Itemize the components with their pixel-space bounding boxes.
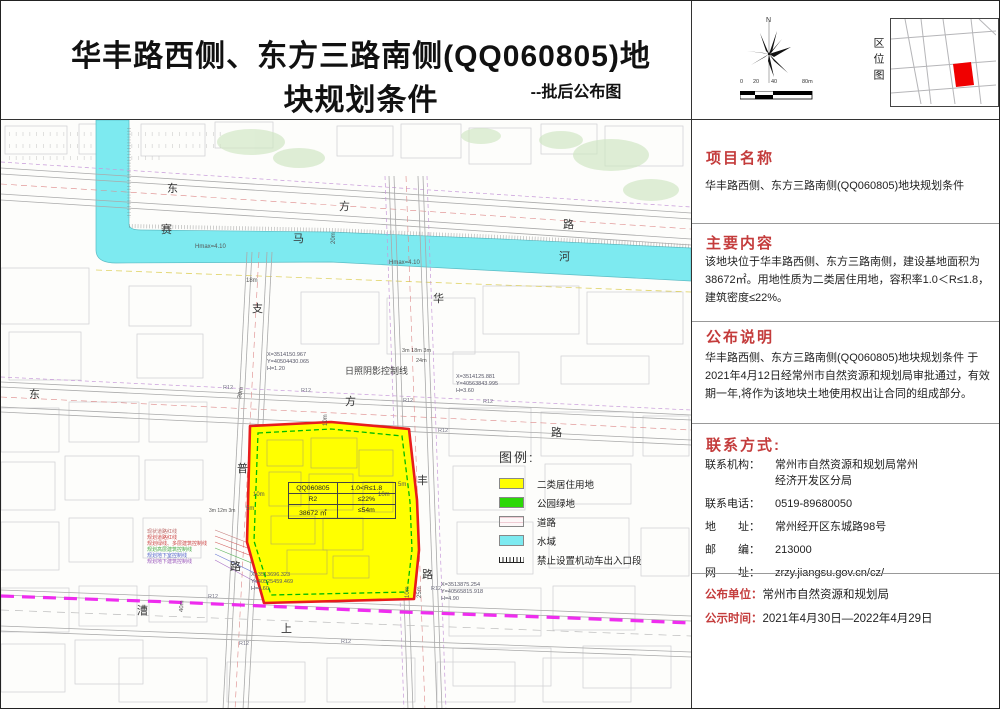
map-label: 丰: [417, 474, 428, 488]
map-label: 方: [345, 395, 356, 409]
map-label: Hmax=4.10: [195, 244, 226, 252]
section-heading-contact: 联系方式:: [706, 434, 781, 455]
scale-bar-graphic: [740, 91, 816, 100]
parcel-table-cell: ≤22%: [338, 494, 395, 504]
map-label: 5m: [246, 506, 254, 514]
contact-row: 邮 编：213000: [705, 543, 991, 559]
map-label: 普: [237, 462, 248, 476]
map-label: 河: [559, 250, 570, 264]
location-map: [890, 18, 999, 107]
contact-label: 联系机构：: [705, 458, 775, 490]
section-body-main-content: 该地块位于华丰路西侧、东方三路南侧，建设基地面积为38672㎡。用地性质为二类居…: [705, 254, 991, 307]
map-label: Hmax=4.10: [389, 260, 420, 268]
map-label: R12: [403, 398, 413, 405]
parcel-table-row: 38672 ㎡≤54m: [289, 504, 395, 518]
map-label: 18m: [246, 278, 258, 286]
contact-label: 地 址：: [705, 520, 775, 536]
map-label: X=3514150.967 Y=40504430.065 H=1.20: [267, 352, 309, 373]
map-label: 3m 18m 3m: [402, 348, 431, 355]
map-label: X=3513696.323 Y=40525459.469 H=4.60: [251, 572, 293, 593]
map-label: 上: [281, 622, 292, 636]
contact-rows: 联系机构：常州市自然资源和规划局常州 经济开发区分局联系电话：0519-8968…: [705, 458, 991, 589]
map-label: 路: [551, 426, 562, 440]
map-label: 24m: [416, 358, 427, 365]
legend-title: 图例:: [499, 447, 679, 466]
map-label: 20m: [331, 232, 339, 244]
park-swatch: [499, 497, 524, 508]
location-map-graphic: [891, 19, 996, 104]
road-swatch: [499, 516, 524, 527]
section-heading-announcement: 公布说明: [706, 326, 774, 347]
scale-labels: 0204080m: [740, 79, 816, 87]
section-divider: [692, 423, 1000, 424]
contact-value: 常州市自然资源和规划局常州 经济开发区分局: [775, 458, 918, 490]
map-label: 10m: [323, 414, 331, 426]
section-divider: [692, 573, 1000, 574]
map-label: R12: [431, 586, 441, 593]
map-label: 东: [29, 388, 40, 402]
section-divider: [692, 223, 1000, 224]
map-label: 25m: [417, 586, 425, 598]
parcel-table-row: R2≤22%: [289, 493, 395, 504]
section-divider: [692, 321, 1000, 322]
planning-map: 东方路赛马河东方路华丰路支普路漕上18mHmax=4.10Hmax=4.10日照…: [1, 120, 691, 709]
map-label: 日照阴影控制线: [345, 366, 408, 378]
location-map-title: 区位图: [870, 37, 886, 85]
map-label: 漕: [137, 604, 148, 618]
scale-bar: 0204080m: [740, 79, 816, 105]
map-label: X=3514125.881 Y=40563843.995 H=3.60: [456, 374, 498, 395]
legend-item: 公园绿地: [499, 497, 679, 508]
footer-row: 公示时间：2021年4月30日—2022年4月29日: [705, 610, 933, 626]
legend-item: 二类居住用地: [499, 478, 679, 489]
map-label: 路: [422, 568, 433, 582]
section-heading-project-name: 项目名称: [706, 147, 774, 168]
legend-item-label: 公园绿地: [537, 496, 575, 510]
map-label: R12: [223, 385, 233, 392]
map-label: 40m: [179, 600, 187, 612]
contact-label: 邮 编：: [705, 543, 775, 559]
footer-label: 公布单位：: [705, 589, 763, 601]
contact-value: 213000: [775, 543, 812, 559]
map-label: 5m: [398, 482, 406, 490]
page-subtitle: --批后公布图: [481, 78, 671, 102]
map-label: X=3513875.254 Y=40565815.918 H=4.90: [441, 582, 483, 603]
compass-rose-icon: [736, 19, 808, 85]
footer-row: 公布单位：常州市自然资源和规划局: [705, 586, 889, 602]
footer-label: 公示时间：: [705, 613, 763, 625]
footer-value: 2021年4月30日—2022年4月29日: [763, 613, 933, 625]
parcel-table-cell: 38672 ㎡: [289, 505, 338, 518]
map-label: 方: [339, 200, 350, 214]
scale-label: 20: [753, 79, 759, 85]
map-label: R12: [483, 399, 493, 406]
parcel-table-cell: R2: [289, 494, 338, 504]
legend-items: 二类居住用地公园绿地道路水域禁止设置机动车出入口段: [499, 478, 679, 565]
scale-label: 0: [740, 79, 743, 85]
map-legend: 图例: 二类居住用地公园绿地道路水域禁止设置机动车出入口段: [499, 447, 679, 573]
residential-swatch: [499, 478, 524, 489]
legend-item-label: 水域: [537, 534, 556, 548]
map-label: 赛: [161, 223, 172, 237]
map-label: 3m 12m 3m: [209, 508, 235, 515]
map-label: R12: [208, 594, 218, 601]
map-label: R12: [301, 388, 311, 395]
map-label: 规划地下建筑控制线: [147, 559, 192, 566]
contact-value: 0519-89680050: [775, 497, 852, 513]
parcel-table-cell: QQ060805: [289, 483, 338, 493]
location-parcel-highlight: [953, 62, 974, 87]
contact-value: 常州经开区东城路98号: [775, 520, 886, 536]
map-label: 华: [433, 292, 444, 306]
parcel-table-cell: ≤54m: [338, 505, 395, 518]
map-label: 10m: [253, 492, 265, 500]
section-body-announcement: 华丰路西侧、东方三路南侧(QQ060805)地块规划条件 于2021年4月12日…: [705, 350, 991, 403]
map-label: 10m: [405, 586, 413, 598]
contact-label: 联系电话：: [705, 497, 775, 513]
legend-item-label: 禁止设置机动车出入口段: [537, 553, 642, 567]
scale-label: 80m: [802, 79, 813, 85]
map-label: 支: [252, 302, 263, 316]
info-sidebar: 项目名称 华丰路西侧、东方三路南侧(QQ060805)地块规划条件 主要内容 该…: [692, 120, 1000, 709]
map-label: R12: [438, 428, 448, 435]
contact-row: 联系电话：0519-89680050: [705, 497, 991, 513]
map-label: 东: [167, 182, 178, 196]
legend-item: 禁止设置机动车出入口段: [499, 554, 679, 565]
legend-item-label: 二类居住用地: [537, 477, 594, 491]
section-body-project-name: 华丰路西侧、东方三路南侧(QQ060805)地块规划条件: [705, 178, 991, 196]
water-swatch: [499, 535, 524, 546]
legend-item: 道路: [499, 516, 679, 527]
no-vehicle-access-swatch: [499, 557, 524, 563]
map-label: 路: [563, 218, 574, 232]
section-heading-main-content: 主要内容: [706, 232, 774, 253]
contact-row: 地 址：常州经开区东城路98号: [705, 520, 991, 536]
map-label: 马: [293, 232, 304, 246]
legend-item: 水域: [499, 535, 679, 546]
legend-item-label: 道路: [537, 515, 556, 529]
contact-row: 联系机构：常州市自然资源和规划局常州 经济开发区分局: [705, 458, 991, 490]
map-label: 路: [230, 560, 241, 574]
footer-value: 常州市自然资源和规划局: [763, 589, 890, 601]
parcel-table-row: QQ0608051.0<R≤1.8: [289, 483, 395, 493]
page-title: 华丰路西侧、东方三路南侧(QQ060805)地块规划条件: [56, 31, 666, 119]
parcel-data-table: QQ0608051.0<R≤1.8R2≤22%38672 ㎡≤54m: [288, 482, 396, 519]
map-label: R12: [239, 641, 249, 648]
scale-label: 40: [771, 79, 777, 85]
map-label: R12: [341, 639, 351, 646]
planning-bulletin-page: 华丰路西侧、东方三路南侧(QQ060805)地块规划条件 --批后公布图 N 0…: [0, 0, 1000, 709]
parcel-table-cell: 1.0<R≤1.8: [338, 483, 395, 493]
